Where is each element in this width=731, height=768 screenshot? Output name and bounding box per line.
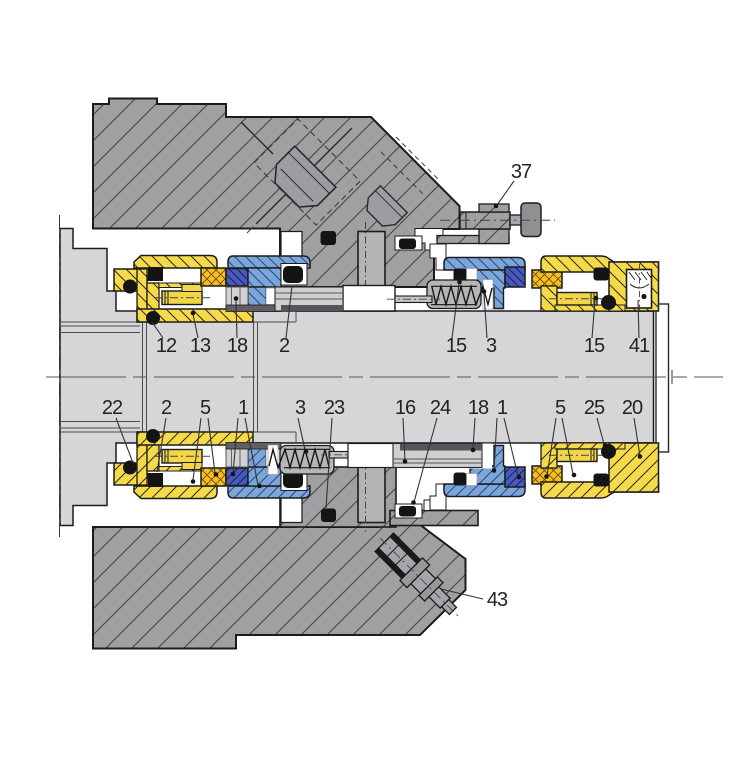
svg-text:2: 2 [279,335,290,357]
svg-text:43: 43 [487,589,508,611]
svg-text:16: 16 [395,397,416,419]
svg-text:3: 3 [295,397,306,419]
svg-text:15: 15 [446,335,467,357]
svg-text:1: 1 [238,397,249,419]
svg-text:15: 15 [584,335,605,357]
svg-text:2: 2 [161,397,172,419]
svg-text:22: 22 [102,397,123,419]
svg-text:12: 12 [156,335,177,357]
svg-text:18: 18 [468,397,489,419]
svg-text:41: 41 [629,335,650,357]
svg-text:13: 13 [190,335,211,357]
svg-text:37: 37 [511,161,532,183]
svg-text:1: 1 [497,397,508,419]
svg-text:23: 23 [324,397,345,419]
svg-text:5: 5 [200,397,211,419]
svg-text:25: 25 [584,397,605,419]
svg-text:3: 3 [486,335,497,357]
svg-text:5: 5 [555,397,566,419]
svg-text:24: 24 [430,397,451,419]
svg-text:20: 20 [622,397,643,419]
svg-text:18: 18 [227,335,248,357]
